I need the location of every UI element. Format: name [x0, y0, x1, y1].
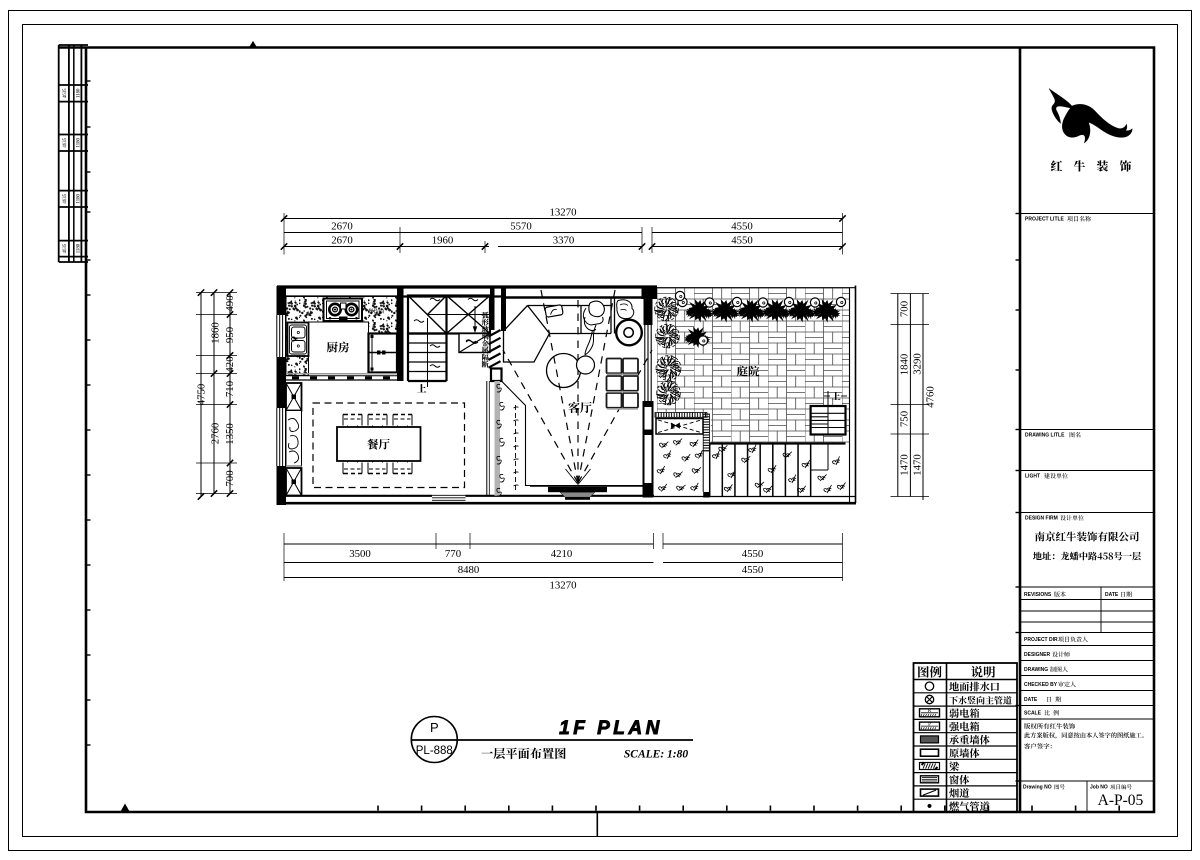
svg-text:3290: 3290 [912, 353, 924, 375]
svg-text:P: P [928, 722, 931, 727]
svg-text:LIGHT: LIGHT [1025, 474, 1040, 480]
svg-text:SCALE: SCALE [1024, 711, 1042, 717]
svg-text:5570: 5570 [510, 221, 532, 233]
svg-text:DRAWING: DRAWING [1024, 667, 1048, 673]
svg-text:CHECKED BY: CHECKED BY [1024, 682, 1058, 688]
svg-text:750: 750 [899, 411, 911, 427]
svg-text:700: 700 [899, 301, 911, 317]
svg-text:DRAWING LITLE: DRAWING LITLE [1025, 433, 1065, 439]
svg-text:770: 770 [445, 548, 461, 560]
svg-text:A-P-05: A-P-05 [1098, 792, 1144, 809]
svg-text:Drawing NO: Drawing NO [1023, 785, 1052, 791]
svg-text:4760: 4760 [925, 386, 937, 408]
svg-text:3370: 3370 [553, 235, 575, 247]
svg-text:4635: 4635 [63, 88, 68, 98]
svg-text:1180: 1180 [77, 193, 82, 203]
svg-text:P: P [430, 720, 439, 735]
svg-text:700: 700 [224, 470, 236, 486]
svg-text:4550: 4550 [731, 235, 753, 247]
svg-text:1180: 1180 [77, 243, 82, 253]
svg-text:DESIGNER: DESIGNER [1024, 652, 1051, 658]
svg-text:3500: 3500 [349, 548, 371, 560]
svg-text:4550: 4550 [742, 564, 764, 576]
svg-text:420: 420 [224, 356, 236, 372]
svg-text:1470: 1470 [899, 454, 911, 476]
svg-text:DESIGN FIRM: DESIGN FIRM [1025, 516, 1058, 522]
svg-text:REVISIONS: REVISIONS [1024, 592, 1052, 598]
svg-text:4635: 4635 [63, 243, 68, 253]
svg-text:PROJECT LITLE: PROJECT LITLE [1025, 217, 1065, 223]
svg-text:4750: 4750 [196, 384, 208, 406]
svg-text:2670: 2670 [331, 221, 353, 233]
svg-text:4550: 4550 [731, 221, 753, 233]
svg-text:1180: 1180 [77, 88, 82, 98]
svg-text:1470: 1470 [912, 454, 924, 476]
svg-text:1F PLAN: 1F PLAN [559, 718, 663, 739]
svg-text:4635: 4635 [63, 193, 68, 203]
svg-text:490: 490 [224, 295, 236, 311]
svg-text:950: 950 [224, 327, 236, 343]
svg-text:8480: 8480 [458, 564, 480, 576]
svg-text:SCALE: 1:80: SCALE: 1:80 [624, 749, 688, 761]
svg-text:Job NO: Job NO [1090, 785, 1108, 791]
svg-text:2670: 2670 [331, 235, 353, 247]
svg-text:DATE: DATE [1105, 592, 1119, 598]
svg-text:13270: 13270 [550, 580, 577, 592]
svg-text:1860: 1860 [210, 322, 222, 344]
svg-text:4210: 4210 [551, 548, 573, 560]
svg-text:13270: 13270 [550, 207, 577, 219]
svg-text:1840: 1840 [899, 354, 911, 376]
svg-text:2760: 2760 [210, 423, 222, 445]
svg-text:710: 710 [224, 381, 236, 397]
svg-text:1350: 1350 [224, 423, 236, 445]
svg-text:4635: 4635 [63, 137, 68, 147]
svg-text:PL-888: PL-888 [416, 745, 453, 757]
svg-text:1960: 1960 [432, 235, 454, 247]
svg-text:1180: 1180 [77, 137, 82, 147]
svg-text:PROJECT DIR: PROJECT DIR [1024, 637, 1058, 643]
svg-text:4550: 4550 [742, 548, 764, 560]
svg-text:DATE: DATE [1024, 697, 1038, 703]
